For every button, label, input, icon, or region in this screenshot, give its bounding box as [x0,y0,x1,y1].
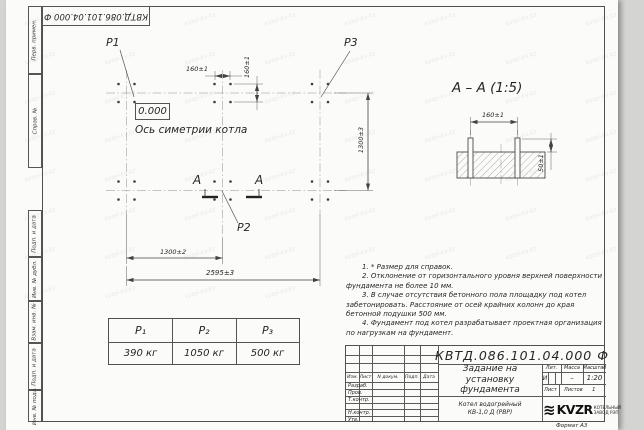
note-3: 3. В случае отсутствия бетонного пола пл… [346,291,609,319]
dim-overall-length: 2595±3 [206,269,234,277]
mass-header: Масса [561,364,583,372]
load-point-p2-label: P2 [237,221,251,234]
boiler-symmetry-axis-label: Ось симетрии котла [135,124,247,136]
dim-bolt-spacing-horizontal: 160±1 [186,65,208,73]
lit-value: И [542,372,548,384]
scale-value: 1:20 [583,372,606,384]
scale-header: Масштаб [583,364,606,372]
load-table: P₁ P₂ P₃ 390 кг 1050 кг 500 кг [108,318,300,365]
load-table-header-p2: P₂ [172,319,236,342]
section-view-title: А – А (1:5) [452,80,522,96]
note-4: 4. Фундамент под котел разрабатывает про… [346,319,609,338]
load-table-value-p1: 390 кг [109,342,172,364]
load-point-p3-label: P3 [344,36,358,49]
format-label: Формат А3 [556,423,587,429]
top-left-doc-number: КВТД.086.101.04.000 Ф [44,11,148,21]
drawing-page: kotel-kv.kzkotel-kv.kzkotel-kv.kzkotel-k… [0,0,644,430]
title-block: КВТД.086.101.04.000 Ф Задание на установ… [345,345,605,422]
technical-notes: 1. * Размер для справок. 2. Отклонение о… [346,263,609,338]
sheet-label: Лист [542,384,559,396]
izm-header: Изм. [346,372,359,382]
sheets-value: 1 [592,387,596,393]
row-prov: Пров. [348,390,363,396]
doc-number: КВТД.086.101.04.000 Ф [438,346,606,364]
section-dim-bolt-spacing: 160±1 [482,111,504,119]
note-1: 1. * Размер для справок. [346,263,609,272]
margin-box-podp-data-2: Подп. и дата [28,343,42,390]
sheets-label: Листов [564,387,583,393]
note-2: 2. Отклонение от горизонтального уровня … [346,272,609,291]
kvzr-logo-icon: ≋ [543,405,556,415]
dim-bolt-spacing-vertical: 160±1 [243,47,253,87]
section-dim-protrusion: 50±1 [537,143,547,183]
kvzr-logo-subtitle: КОТЕЛЬНЫЙ ЗАВОД РЭП [594,405,621,415]
row-nkontr: Н.контр. [348,410,370,416]
kvzr-logo-text: KVZR [557,402,593,417]
section-letter-right: А [255,173,263,187]
dim-row-spacing: 1300±3 [357,120,367,160]
podp-header: Подп. [404,372,420,382]
margin-box-perv-primen: Перв. примен. [28,6,42,74]
mass-value: – [561,372,583,384]
margin-box-sprav-no: Справ. № [28,74,42,168]
elevation-mark: 0.000 [135,103,170,120]
margin-box-vzam-inv: Взам. инв. № [28,301,42,343]
margin-box-inv-dubl: Инв. № дубл. [28,257,42,301]
lit-header: Лит. [542,364,561,372]
margin-box-inv-podl: Инв. № подл. [28,390,42,422]
margin-box-podp-data-1: Подп. и дата [28,210,42,257]
load-table-value-p2: 1050 кг [172,342,236,364]
row-utv: Утв. [348,417,359,423]
top-left-doc-stamp: КВТД.086.101.04.000 Ф [42,6,150,26]
data-header: Дата [420,372,438,382]
dim-column-spacing: 1300±2 [160,248,186,256]
load-point-p1-label: P1 [106,36,120,49]
drawing-title: Задание на установку фундамента [438,364,542,396]
load-table-header-p1: P₁ [109,319,172,342]
row-tkontr: Т.контр. [348,397,370,403]
list-header: Лист [359,372,372,382]
row-razrab: Разраб. [348,383,368,389]
ndoc-header: N докум. [372,372,404,382]
load-table-value-p3: 500 кг [236,342,299,364]
section-letter-left: А [193,173,201,187]
load-table-header-p3: P₃ [236,319,299,342]
company-logo: ≋ KVZR КОТЕЛЬНЫЙ ЗАВОД РЭП [543,397,605,422]
product-name: Котел водогрейный КВ-1,0 Д (РВР) [438,396,542,421]
